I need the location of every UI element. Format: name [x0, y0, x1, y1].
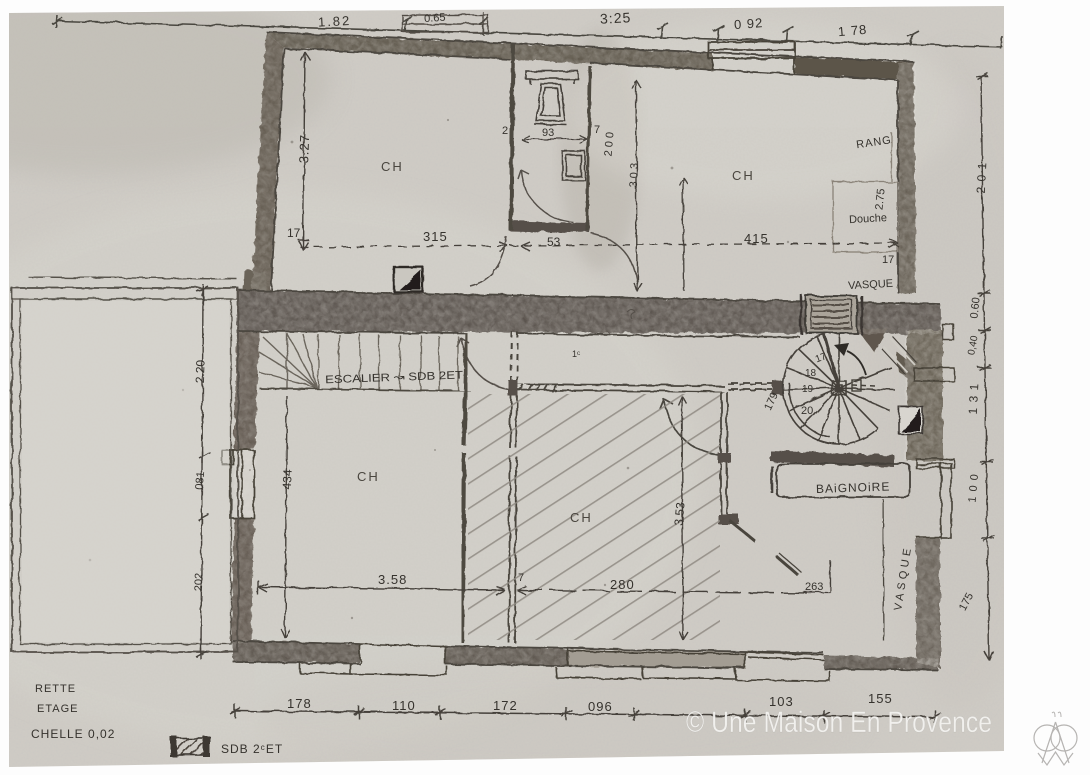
svg-text:263: 263 — [805, 581, 823, 593]
svg-text:2.75: 2.75 — [873, 188, 887, 211]
svg-text:110: 110 — [392, 698, 416, 713]
svg-text:1 0 0: 1 0 0 — [967, 473, 982, 503]
svg-text:7: 7 — [518, 572, 524, 584]
svg-text:SDB 2ᶜET: SDB 2ᶜET — [221, 742, 283, 756]
svg-text:Douche: Douche — [849, 212, 887, 226]
svg-text:ETAGE: ETAGE — [37, 703, 78, 715]
svg-text:53: 53 — [547, 235, 561, 249]
svg-text:3.58: 3.58 — [378, 572, 407, 587]
svg-text:CH: CH — [732, 168, 755, 183]
svg-text:93: 93 — [542, 127, 554, 139]
svg-text:315: 315 — [423, 229, 448, 244]
svg-text:3.27: 3.27 — [296, 134, 312, 164]
svg-text:178: 178 — [287, 696, 312, 711]
svg-text:CHELLE 0,02: CHELLE 0,02 — [31, 727, 115, 741]
svg-text:280: 280 — [610, 577, 635, 592]
svg-text:081: 081 — [194, 471, 208, 490]
svg-text:7: 7 — [594, 124, 600, 136]
svg-text:1ᶜ: 1ᶜ — [572, 349, 580, 359]
svg-text:RETTE: RETTE — [35, 683, 76, 695]
svg-text:1.82: 1.82 — [318, 13, 352, 30]
svg-text:3.53: 3.53 — [672, 501, 688, 526]
svg-text:0.60: 0.60 — [968, 297, 982, 320]
svg-text:© Une Maison En Provence: © Une Maison En Provence — [686, 706, 992, 739]
svg-text:1 3 1: 1 3 1 — [966, 382, 982, 414]
svg-text:202: 202 — [193, 573, 206, 592]
svg-text:17: 17 — [287, 226, 301, 240]
svg-text:CH: CH — [357, 469, 380, 484]
svg-text:18: 18 — [805, 368, 817, 379]
svg-text:0.65: 0.65 — [424, 12, 446, 25]
svg-text:VASQUE: VASQUE — [848, 278, 894, 292]
svg-text:3 0 3: 3 0 3 — [628, 163, 641, 188]
svg-text:19: 19 — [802, 384, 814, 395]
svg-text:415: 415 — [744, 231, 769, 246]
svg-text:172: 172 — [493, 698, 518, 713]
svg-text:096: 096 — [588, 699, 613, 714]
svg-text:BAiGNOiRE: BAiGNOiRE — [816, 479, 891, 496]
svg-text:CH: CH — [381, 159, 404, 174]
svg-text:20: 20 — [801, 405, 813, 417]
svg-text:434: 434 — [280, 469, 295, 490]
svg-text:17: 17 — [882, 254, 894, 266]
svg-text:2.20: 2.20 — [193, 359, 208, 383]
svg-text:155: 155 — [868, 691, 893, 706]
svg-text:3:25: 3:25 — [600, 9, 632, 27]
svg-text:2 0 1: 2 0 1 — [974, 161, 990, 193]
svg-text:CH: CH — [570, 510, 593, 525]
svg-text:2: 2 — [502, 125, 508, 137]
svg-text:2 0 0: 2 0 0 — [602, 132, 616, 157]
svg-text:0 92: 0 92 — [733, 15, 763, 32]
svg-text:1 78: 1 78 — [837, 22, 868, 39]
